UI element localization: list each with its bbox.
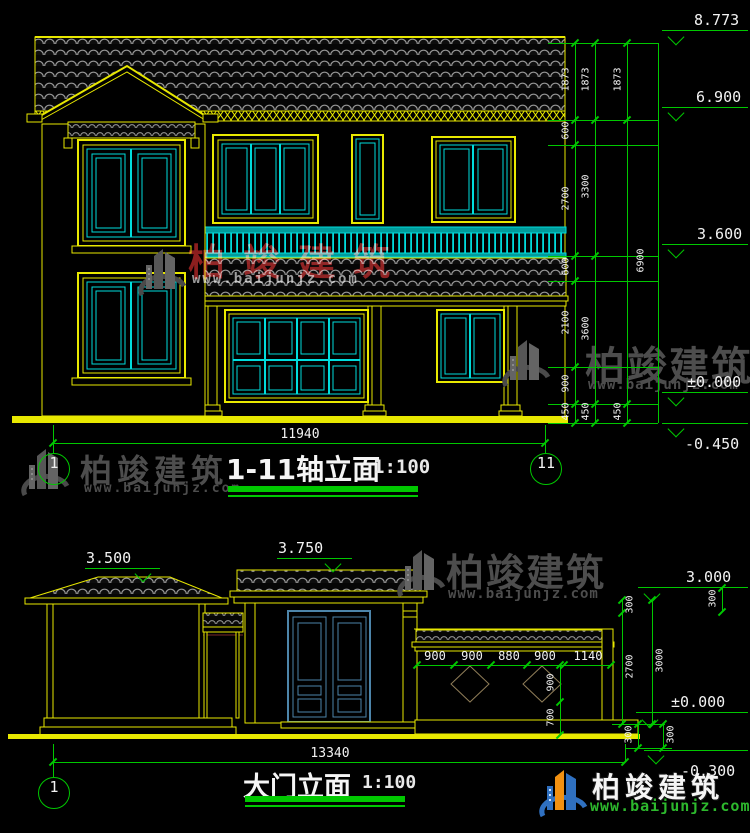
level-value: ±0.000: [671, 693, 725, 711]
axis-line: [53, 744, 54, 777]
dim-line-vertical: [627, 43, 628, 423]
level-value: 3.500: [86, 549, 131, 567]
axis-line: [53, 425, 54, 453]
level-line: [636, 712, 748, 713]
axis-bubble: 1: [38, 453, 70, 485]
level-value: 3.000: [686, 568, 731, 586]
dim-label: 6900: [636, 239, 647, 283]
annotation-overlay: 柏竣建筑www.baijunjz.com柏竣建筑www.baijunjz.com…: [0, 0, 750, 833]
dim-label: 1873: [613, 58, 624, 102]
dim-label: 3300: [581, 165, 592, 209]
watermark-site-text: www.baijunjz.com: [84, 481, 241, 496]
axis-bubble: 1: [38, 777, 70, 809]
dim-label: 450: [581, 390, 592, 434]
dim-label: 600: [561, 245, 572, 289]
watermark-site-text: www.baijunjz.com: [590, 797, 750, 815]
level-value: 3.600: [697, 225, 742, 243]
extension-line: [548, 43, 658, 44]
drawing1-title-underline: [228, 486, 418, 492]
level-value: 8.773: [694, 11, 739, 29]
level-line: [277, 558, 352, 559]
dim-label: 700: [546, 696, 557, 740]
dim-label: 1873: [561, 58, 572, 102]
dim-tick: [556, 731, 564, 739]
level-value: -0.450: [685, 435, 739, 453]
drawing1-title: 1-11轴立面: [226, 448, 380, 488]
dim-line-horizontal: [53, 443, 545, 444]
level-value: 6.900: [696, 88, 741, 106]
dim-label: 13340: [300, 746, 360, 761]
level-value: -0.300: [681, 762, 735, 780]
axis-bubble: 11: [530, 453, 562, 485]
extension-boundary: [658, 43, 659, 423]
dim-line-vertical: [622, 600, 623, 724]
level-line: [85, 568, 160, 569]
dim-label: 2700: [625, 645, 636, 689]
watermark-site-text: www.baijunjz.com: [192, 271, 359, 287]
dim-label: 2100: [561, 301, 572, 345]
extension-stub: [625, 744, 626, 762]
level-triangle: [668, 29, 685, 46]
level-triangle: [642, 712, 659, 729]
dim-label: 450: [613, 390, 624, 434]
dim-label: 450: [561, 390, 572, 434]
dim-line-vertical: [595, 43, 596, 423]
dim-tick: [718, 608, 726, 616]
dim-label: 300: [625, 583, 636, 627]
drawing2-title-underline-thin: [245, 805, 405, 807]
dim-label: 2700: [561, 177, 572, 221]
watermark-site-text: www.baijunjz.com: [448, 586, 599, 602]
axis-line: [545, 425, 546, 453]
dim-line-horizontal: [417, 665, 611, 666]
dim-line-vertical: [652, 600, 653, 724]
level-value: 3.750: [278, 539, 323, 557]
dim-label: 11940: [270, 427, 330, 442]
drawing2-scale: 1:100: [362, 772, 416, 793]
dim-label: 3600: [581, 307, 592, 351]
dim-label: 3000: [655, 639, 666, 683]
level-triangle: [644, 586, 661, 603]
drawing1-scale: 1:100: [373, 456, 430, 478]
dim-line-horizontal: [53, 762, 625, 763]
dim-label: 1873: [581, 58, 592, 102]
drawing1-title-underline-thin: [228, 495, 418, 497]
level-value: ±0.000: [687, 373, 741, 391]
dim-label: 600: [561, 109, 572, 153]
drawing2-title-underline: [245, 796, 405, 802]
dim-label: 1140: [558, 649, 618, 663]
cad-viewport: 柏竣建筑www.baijunjz.com柏竣建筑www.baijunjz.com…: [0, 0, 750, 833]
